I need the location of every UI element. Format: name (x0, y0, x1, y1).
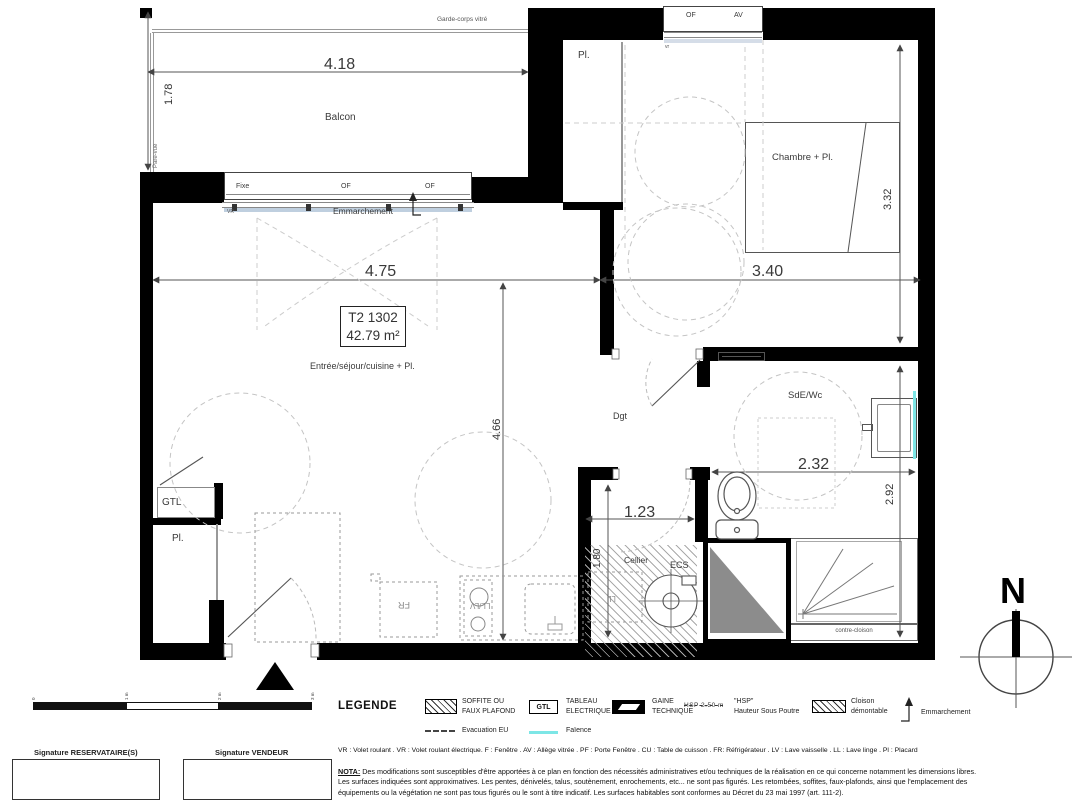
door-jambs (224, 349, 703, 657)
signature-reservataire-label: Signature RESERVATAIRE(S) (34, 748, 138, 757)
dim-balcony-width: 4.18 (324, 56, 355, 74)
dim-cellier-depth: 1.80 (592, 549, 603, 568)
signature-vendeur-label: Signature VENDEUR (215, 748, 288, 757)
room-dgt: Dgt (613, 411, 627, 421)
emmarchement-arrow (413, 200, 909, 721)
legend-label: TECHNIQUE (652, 708, 693, 715)
pl-entry-label: Pl. (172, 533, 184, 544)
nota-line-1: NOTA: Des modifications sont susceptible… (338, 767, 1088, 777)
evacuation-swatch (425, 730, 455, 732)
window-fixe-label: Fixe (236, 183, 249, 190)
nota-line-3: équipements ou la végétation ne sont pas… (338, 788, 1088, 798)
plan-linework (0, 0, 1091, 800)
room-sejour: Entrée/séjour/cuisine + Pl. (310, 361, 415, 371)
gtl-label: GTL (162, 497, 181, 508)
window-of-label: OF (425, 183, 435, 190)
ll-label: LL (607, 594, 616, 603)
soffite-swatch (425, 699, 457, 714)
signature-vendeur-box (183, 759, 332, 800)
shower-rays (798, 549, 897, 619)
dim-balcony-depth: 1.78 (163, 84, 175, 105)
gaine-swatch-band (618, 704, 640, 710)
ll-lv-label: LL/LV (470, 601, 490, 610)
nota-line-2: Les surfaces indiquées sont approximativ… (338, 777, 1088, 787)
nota-paragraph: NOTA: Des modifications sont susceptible… (338, 767, 1088, 798)
abbreviations-line: VR : Volet roulant . VR : Volet roulant … (338, 747, 918, 754)
vr-label: VR (227, 209, 234, 215)
scalebar-segment (33, 702, 126, 710)
dim-sejour-width: 4.75 (365, 263, 396, 281)
dim-sejour-depth: 4.66 (491, 419, 503, 440)
bed-fold-line (848, 123, 866, 252)
door-leaves (160, 360, 700, 637)
contre-cloison-label: contre-cloison (790, 628, 918, 634)
gaine-triangle (710, 547, 784, 633)
cloison-swatch (812, 700, 846, 713)
vr-label: vr (665, 44, 669, 50)
room-cellier: Cellier (624, 555, 648, 565)
nota-label: NOTA: (338, 767, 360, 776)
dim-chambre-depth: 3.32 (882, 189, 894, 210)
nota-text: Des modifications sont susceptibles d'êt… (360, 767, 976, 776)
scalebar-tick: 3 m (310, 692, 315, 700)
unit-area: 42.79 m² (341, 327, 405, 345)
legend-label: SOFFITE OU (462, 698, 504, 705)
window-av-top-label: AV (734, 12, 743, 19)
gtl-swatch: GTL (529, 700, 558, 714)
legend-label: démontable (851, 708, 888, 715)
emmarchement-label: Emmarchement (333, 206, 393, 216)
legend-label: Faïence (566, 727, 591, 734)
ecs-label: ECS (670, 560, 689, 570)
room-chambre: Chambre + Pl. (772, 152, 833, 163)
entrance-marker-triangle (256, 662, 294, 690)
dim-chambre-width: 3.40 (752, 263, 783, 281)
legend-label: Hauteur Sous Poutre (734, 708, 799, 715)
dimension-lines (148, 12, 920, 640)
scalebar-tick: 1 m (124, 692, 129, 700)
north-compass (960, 609, 1072, 708)
legend-label: Evacuation EU (462, 727, 508, 734)
legend-label: FAUX PLAFOND (462, 708, 515, 715)
legend-label: GAINE (652, 698, 674, 705)
legend-label: TABLEAU (566, 698, 597, 705)
pare-vue-label: Pare-vue (153, 144, 159, 168)
unit-code: T2 1302 (341, 309, 405, 327)
legend-label: "HSP" (734, 698, 753, 705)
scalebar-segment (219, 702, 312, 710)
guardrail-label: Garde-corps vitré (437, 16, 487, 23)
scalebar-segment (126, 702, 219, 710)
dim-cellier-width: 1.23 (624, 504, 655, 522)
hsp-swatch: HSP 2.50 m (684, 702, 724, 709)
legend-title: LEGENDE (338, 700, 397, 712)
legend-label: Cloison (851, 698, 874, 705)
floor-plan-sheet: 0 1 m 2 m 3 m T2 1302 42.79 m² Garde-cor… (0, 0, 1091, 800)
room-balcon: Balcon (325, 112, 356, 123)
window-of-label: OF (341, 183, 351, 190)
room-sde: SdE/Wc (788, 390, 822, 401)
scalebar-tick: 2 m (217, 692, 222, 700)
legend-label: Emmarchement (921, 709, 970, 716)
dim-sde-width: 2.32 (798, 456, 829, 474)
fr-label: FR (398, 600, 410, 610)
window-projections (257, 40, 763, 330)
dim-sde-depth: 2.92 (884, 484, 896, 505)
compass-north-label: N (1000, 570, 1026, 612)
legend-label: ELECTRIQUE (566, 708, 611, 715)
faience-swatch (529, 731, 558, 734)
closet-pl-label: Pl. (578, 50, 590, 61)
scalebar-tick: 0 (31, 697, 36, 700)
gaine-swatch (612, 700, 645, 714)
ecs-heater (639, 569, 703, 633)
toilet (716, 472, 758, 539)
signature-reservataire-box (12, 759, 160, 800)
unit-title-box: T2 1302 42.79 m² (340, 306, 406, 347)
window-of-top-label: OF (686, 12, 696, 19)
door-swings (291, 359, 690, 641)
